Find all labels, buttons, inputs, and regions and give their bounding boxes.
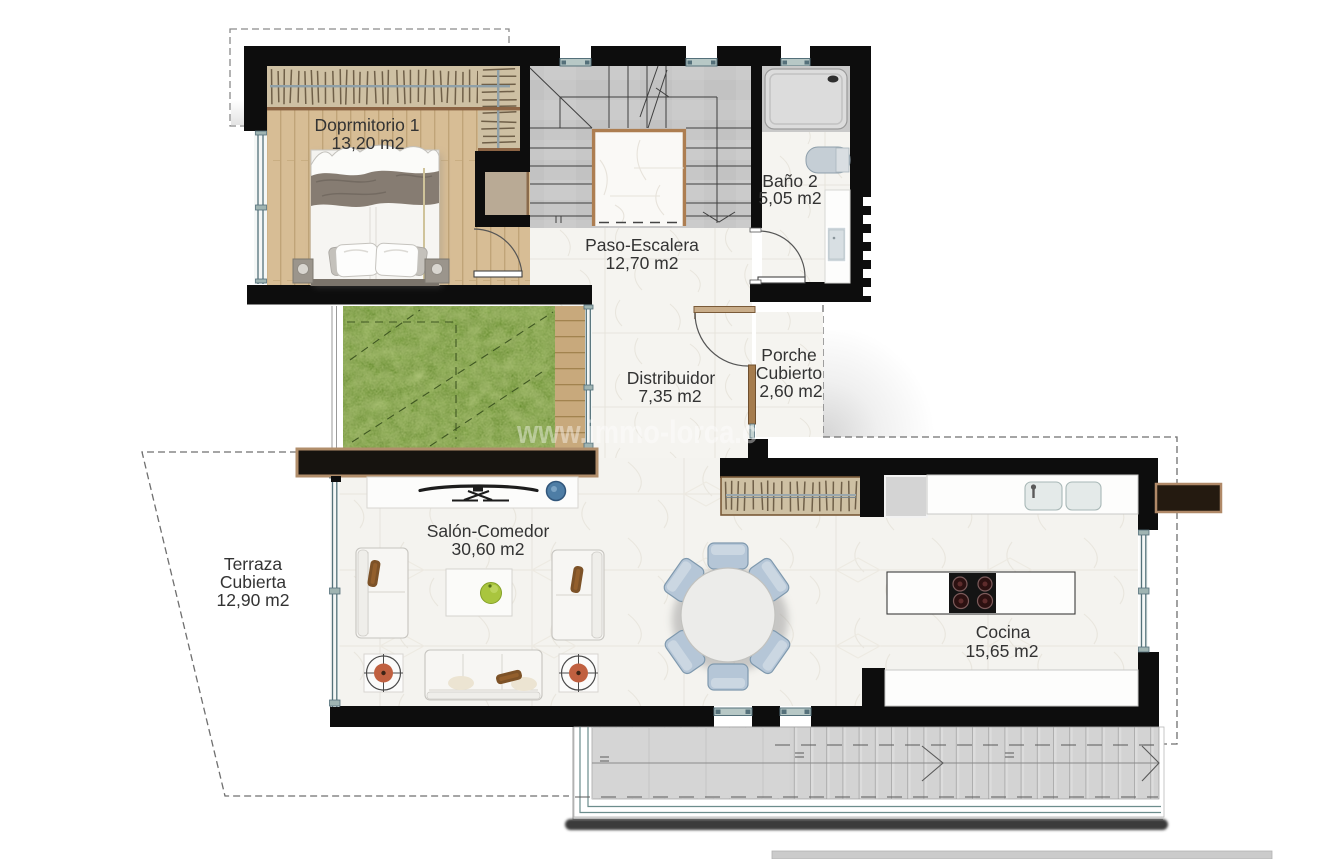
- svg-text:Doprmitorio 1: Doprmitorio 1: [314, 115, 419, 135]
- svg-text:Paso-Escalera: Paso-Escalera: [585, 235, 699, 255]
- svg-text:13,20 m2: 13,20 m2: [332, 133, 405, 153]
- svg-text:www.immo-lorca.c: www.immo-lorca.c: [516, 414, 757, 450]
- svg-text:Porche: Porche: [761, 345, 816, 365]
- svg-text:Distribuidor: Distribuidor: [627, 368, 716, 388]
- svg-text:30,60 m2: 30,60 m2: [452, 539, 525, 559]
- svg-text:15,65 m2: 15,65 m2: [966, 641, 1039, 661]
- svg-text:12,90 m2: 12,90 m2: [217, 590, 290, 610]
- svg-text:5,05 m2: 5,05 m2: [758, 188, 821, 208]
- svg-text:12,70 m2: 12,70 m2: [606, 253, 679, 273]
- svg-text:Terraza: Terraza: [224, 554, 283, 574]
- svg-text:7,35 m2: 7,35 m2: [638, 386, 701, 406]
- svg-text:2,60 m2: 2,60 m2: [759, 381, 822, 401]
- svg-text:Cubierta: Cubierta: [220, 572, 286, 592]
- svg-text:Cubierto: Cubierto: [756, 363, 822, 383]
- svg-text:Cocina: Cocina: [976, 622, 1031, 642]
- svg-text:Salón-Comedor: Salón-Comedor: [427, 521, 550, 541]
